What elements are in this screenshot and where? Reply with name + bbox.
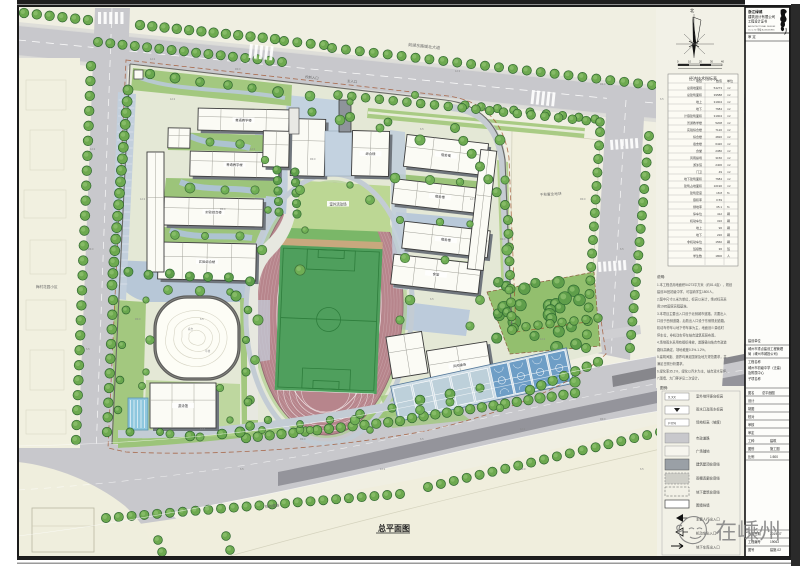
svg-text:10190: 10190 bbox=[714, 184, 723, 188]
svg-text:风雨操场: 风雨操场 bbox=[690, 155, 702, 160]
svg-text:6.5: 6.5 bbox=[330, 49, 334, 53]
svg-text:12.3: 12.3 bbox=[150, 57, 156, 61]
svg-text:31904: 31904 bbox=[714, 100, 723, 104]
svg-text:ARCHITECTURAL DESIGN: ARCHITECTURAL DESIGN bbox=[748, 25, 776, 28]
svg-text:围墙挡墙: 围墙挡墙 bbox=[696, 502, 710, 507]
svg-text:室外活动场: 室外活动场 bbox=[330, 201, 348, 206]
svg-text:R9.0: R9.0 bbox=[235, 67, 241, 71]
svg-text:计容建筑面积: 计容建筑面积 bbox=[684, 113, 702, 118]
svg-text:m²: m² bbox=[727, 135, 731, 139]
svg-text:综合楼: 综合楼 bbox=[693, 134, 702, 139]
svg-text:机动车停车以地下停车库为主，地面设少量临时: 机动车停车以地下停车库为主，地面设少量临时 bbox=[657, 325, 725, 330]
svg-text:地下: 地下 bbox=[696, 106, 702, 111]
svg-text:5208: 5208 bbox=[715, 121, 722, 125]
svg-text:实验综合楼: 实验综合楼 bbox=[199, 259, 216, 264]
svg-text:比例: 比例 bbox=[748, 454, 754, 459]
svg-text:建筑设计有限公司: 建筑设计有限公司 bbox=[748, 14, 775, 19]
svg-text:m²: m² bbox=[727, 93, 731, 97]
svg-text:2380: 2380 bbox=[715, 149, 722, 153]
svg-text:35.1: 35.1 bbox=[716, 205, 722, 209]
svg-text:总平面图: 总平面图 bbox=[378, 523, 410, 533]
svg-text:室外地坪竖向标高: 室外地坪竖向标高 bbox=[696, 393, 724, 398]
svg-text:m²: m² bbox=[727, 149, 731, 153]
svg-text:m²: m² bbox=[727, 177, 731, 181]
svg-text:口设于西侧道路，后勤出入口设于东侧规划道路。: 口设于西侧道路，后勤出入口设于东侧规划道路。 bbox=[657, 318, 727, 323]
svg-text:综合楼: 综合楼 bbox=[365, 151, 376, 156]
svg-text:非机动车位: 非机动车位 bbox=[687, 239, 702, 244]
svg-text:6.5: 6.5 bbox=[420, 437, 424, 441]
svg-text:审 定: 审 定 bbox=[748, 34, 756, 39]
svg-text:施工图: 施工图 bbox=[770, 446, 780, 451]
svg-text:辆: 辆 bbox=[727, 211, 730, 216]
svg-text:制图: 制图 bbox=[748, 406, 754, 411]
svg-text:游泳馆: 游泳馆 bbox=[693, 162, 702, 167]
svg-text:3.本项目主要出入口设于北侧城市道路，次要出入: 3.本项目主要出入口设于北侧城市道路，次要出入 bbox=[657, 311, 727, 316]
svg-text:R9.0: R9.0 bbox=[600, 417, 606, 421]
svg-text:4820: 4820 bbox=[715, 135, 722, 139]
svg-text:图名: 图名 bbox=[748, 390, 754, 395]
svg-text:辆: 辆 bbox=[727, 225, 730, 230]
svg-text:辆: 辆 bbox=[727, 232, 730, 237]
svg-text:6.5: 6.5 bbox=[620, 247, 624, 251]
svg-text:220: 220 bbox=[717, 233, 722, 237]
svg-text:6.绿化率35.1%，绿化以乔木为主，结合灌木草坪。: 6.绿化率35.1%，绿化以乔木为主，结合灌木草坪。 bbox=[657, 368, 729, 373]
svg-text:1560: 1560 bbox=[715, 240, 722, 244]
svg-text:12.3: 12.3 bbox=[140, 197, 146, 201]
svg-text:R9.0: R9.0 bbox=[220, 207, 226, 211]
svg-text:总平面图: 总平面图 bbox=[762, 390, 775, 395]
svg-text:工种: 工种 bbox=[748, 438, 754, 443]
svg-text:2406: 2406 bbox=[715, 163, 722, 167]
svg-text:审核: 审核 bbox=[748, 422, 755, 427]
svg-text:校对: 校对 bbox=[748, 414, 755, 419]
svg-text:3150: 3150 bbox=[715, 156, 722, 160]
svg-text:2.图中尺寸以米为单位，标高以米计，绝对标高采: 2.图中尺寸以米为单位，标高以米计，绝对标高采 bbox=[657, 296, 727, 301]
svg-text:食堂: 食堂 bbox=[696, 148, 702, 153]
svg-text:地下: 地下 bbox=[696, 232, 702, 237]
svg-text:6.5: 6.5 bbox=[240, 467, 244, 471]
svg-text:建设36班初级中学，可容纳学生1800人。: 建设36班初级中学，可容纳学生1800人。 bbox=[657, 289, 715, 294]
svg-text:R9.0: R9.0 bbox=[500, 237, 506, 241]
svg-text:6.5: 6.5 bbox=[660, 97, 664, 101]
svg-text:辆: 辆 bbox=[727, 239, 730, 244]
svg-text:m²: m² bbox=[727, 170, 731, 174]
svg-text:X.XX: X.XX bbox=[668, 396, 676, 400]
svg-text:游泳馆: 游泳馆 bbox=[178, 403, 189, 408]
svg-text:m²: m² bbox=[727, 86, 731, 90]
svg-text:市政道路: 市政道路 bbox=[696, 435, 710, 440]
svg-text:地上: 地上 bbox=[696, 225, 702, 230]
svg-text:6.5: 6.5 bbox=[200, 317, 204, 321]
svg-text:数值: 数值 bbox=[716, 78, 722, 83]
svg-text:建筑屋顶轮廓线: 建筑屋顶轮廓线 bbox=[696, 461, 720, 466]
svg-text:m²: m² bbox=[727, 121, 731, 125]
svg-text:m²: m² bbox=[727, 142, 731, 146]
svg-text:7.围墙、大门等详见二次设计。: 7.围墙、大门等详见二次设计。 bbox=[657, 376, 701, 381]
svg-text:说明:: 说明: bbox=[657, 274, 665, 279]
svg-text:R9.0: R9.0 bbox=[300, 437, 306, 441]
svg-text:49: 49 bbox=[719, 170, 723, 174]
svg-text:6.5: 6.5 bbox=[640, 467, 644, 471]
svg-text:5.建筑间距、退界均满足国家及地方规范要求，并: 5.建筑间距、退界均满足国家及地方规范要求，并 bbox=[657, 354, 727, 359]
svg-text:设计: 设计 bbox=[748, 398, 755, 403]
svg-text:图例:: 图例: bbox=[660, 385, 668, 390]
svg-text:m²: m² bbox=[727, 100, 731, 104]
svg-text:1.本工程总用地面积54273平方米（约81.4亩），规划: 1.本工程总用地面积54273平方米（约81.4亩），规划 bbox=[657, 282, 732, 287]
svg-text:m²: m² bbox=[727, 114, 731, 118]
svg-text:36: 36 bbox=[719, 247, 723, 251]
svg-text:项目: 项目 bbox=[696, 79, 702, 83]
svg-text:工程设计证书: 工程设计证书 bbox=[748, 19, 768, 24]
svg-text:12.3: 12.3 bbox=[250, 147, 256, 151]
svg-text:嵊州市初级中学（迁建）: 嵊州市初级中学（迁建） bbox=[748, 365, 783, 370]
svg-text:图号: 图号 bbox=[748, 547, 754, 552]
svg-text:满足日照分析要求。: 满足日照分析要求。 bbox=[657, 361, 686, 366]
svg-text:子项名称: 子项名称 bbox=[748, 376, 762, 381]
svg-text:412: 412 bbox=[717, 212, 722, 216]
svg-text:%: % bbox=[727, 205, 730, 209]
svg-text:R9.0: R9.0 bbox=[88, 247, 94, 251]
svg-text:路标高确定，场地坡度0.3%-1.2%。: 路标高确定，场地坡度0.3%-1.2%。 bbox=[657, 347, 708, 352]
svg-text:39588: 39588 bbox=[714, 93, 723, 97]
svg-text:%: % bbox=[727, 191, 730, 195]
svg-text:R9.0: R9.0 bbox=[600, 82, 606, 86]
svg-text:浙江绿城: 浙江绿城 bbox=[748, 9, 763, 14]
svg-text:12.3: 12.3 bbox=[170, 97, 176, 101]
svg-text:m²: m² bbox=[727, 128, 731, 132]
svg-text:班级数: 班级数 bbox=[693, 246, 702, 251]
svg-text:机动车位: 机动车位 bbox=[690, 218, 702, 223]
svg-text:R9.0: R9.0 bbox=[310, 157, 316, 161]
svg-text:地上: 地上 bbox=[696, 99, 702, 104]
svg-text:经济技术指标表: 经济技术指标表 bbox=[689, 75, 717, 81]
svg-text:总建筑面积: 总建筑面积 bbox=[687, 92, 702, 97]
svg-text:普通教学楼: 普通教学楼 bbox=[226, 162, 243, 167]
svg-text:雨棚连廊轮廓线: 雨棚连廊轮廓线 bbox=[696, 475, 720, 480]
svg-text:嵊州市重点建设工程管理: 嵊州市重点建设工程管理 bbox=[748, 346, 784, 351]
svg-text:在嵊州: 在嵊州 bbox=[715, 519, 781, 544]
svg-text:实验综合楼: 实验综合楼 bbox=[687, 127, 702, 132]
svg-text:6.5: 6.5 bbox=[420, 127, 424, 131]
svg-text:96: 96 bbox=[719, 226, 723, 230]
svg-text:12.3: 12.3 bbox=[520, 427, 526, 431]
svg-text:图别: 图别 bbox=[748, 446, 754, 451]
svg-text:6420: 6420 bbox=[715, 142, 722, 146]
svg-text:班: 班 bbox=[727, 246, 730, 251]
svg-text:地下建筑面积: 地下建筑面积 bbox=[684, 176, 702, 181]
svg-text:普通教学楼: 普通教学楼 bbox=[687, 120, 702, 125]
svg-text:停车位，非机动车停车结合建筑底层布置。: 停车位，非机动车停车结合建筑底层布置。 bbox=[657, 332, 718, 337]
svg-text:m²: m² bbox=[727, 107, 731, 111]
svg-text:建施-02: 建施-02 bbox=[770, 547, 781, 552]
svg-text:用1985国家高程基准。: 用1985国家高程基准。 bbox=[657, 304, 690, 309]
svg-text:容积率: 容积率 bbox=[693, 197, 702, 202]
svg-text:人: 人 bbox=[727, 254, 730, 258]
svg-text:1800: 1800 bbox=[715, 254, 722, 258]
svg-text:审定: 审定 bbox=[748, 430, 755, 435]
svg-text:7120: 7120 bbox=[715, 128, 722, 132]
svg-text:m²: m² bbox=[727, 184, 731, 188]
svg-text:12.3: 12.3 bbox=[470, 197, 476, 201]
svg-text:12.3: 12.3 bbox=[200, 427, 206, 431]
svg-text:广场铺地: 广场铺地 bbox=[696, 448, 710, 453]
svg-text:绿地率: 绿地率 bbox=[693, 204, 702, 209]
svg-text:建筑: 建筑 bbox=[770, 438, 777, 443]
svg-text:局（嵊州市城投公司）: 局（嵊州市城投公司） bbox=[748, 351, 780, 356]
svg-text:R9.0: R9.0 bbox=[135, 317, 141, 321]
svg-text:4.场地雨水采用有组织排放，道路竖向结合市政道: 4.场地雨水采用有组织排放，道路竖向结合市政道 bbox=[657, 340, 727, 345]
svg-text:学生数: 学生数 bbox=[693, 253, 702, 258]
svg-text:辆: 辆 bbox=[727, 218, 730, 223]
svg-text:R9.0: R9.0 bbox=[580, 197, 586, 201]
svg-text:普通教学楼: 普通教学楼 bbox=[235, 117, 252, 122]
svg-text:54273: 54273 bbox=[714, 86, 723, 90]
svg-text:1:500: 1:500 bbox=[770, 455, 778, 459]
svg-text:地下建筑轮廓线: 地下建筑轮廓线 bbox=[696, 489, 720, 494]
svg-text:7684: 7684 bbox=[715, 107, 722, 111]
svg-text:12.3: 12.3 bbox=[455, 69, 461, 73]
svg-text:12.3: 12.3 bbox=[380, 467, 386, 471]
svg-text:梅村花园小区: 梅村花园小区 bbox=[36, 284, 58, 289]
svg-text:建筑密度: 建筑密度 bbox=[690, 190, 702, 195]
svg-text:m²: m² bbox=[727, 156, 731, 160]
svg-text:宿舍楼: 宿舍楼 bbox=[693, 141, 702, 146]
svg-text:0.59: 0.59 bbox=[716, 198, 722, 202]
svg-text:及附属中心: 及附属中心 bbox=[748, 370, 765, 375]
svg-text:停车位: 停车位 bbox=[693, 211, 702, 216]
svg-text:建筑占地面积: 建筑占地面积 bbox=[684, 183, 702, 188]
svg-text:地下车库出入口: 地下车库出入口 bbox=[696, 544, 720, 549]
svg-text:6.5: 6.5 bbox=[430, 297, 434, 301]
svg-text:门卫: 门卫 bbox=[696, 169, 702, 174]
svg-text:雨水口及雨水标高: 雨水口及雨水标高 bbox=[696, 406, 724, 411]
svg-text:12.3: 12.3 bbox=[540, 337, 546, 341]
svg-text:场地标高（坡度）: 场地标高（坡度） bbox=[696, 419, 723, 424]
svg-text:31904: 31904 bbox=[714, 114, 723, 118]
svg-text:建设单位: 建设单位 bbox=[748, 338, 762, 343]
svg-text:单位: 单位 bbox=[727, 78, 733, 83]
svg-text:316: 316 bbox=[717, 219, 722, 223]
svg-text:工程名称: 工程名称 bbox=[748, 359, 762, 364]
svg-text:6.5: 6.5 bbox=[86, 347, 90, 351]
svg-text:18.8: 18.8 bbox=[716, 191, 722, 195]
svg-text:R9.0: R9.0 bbox=[520, 467, 526, 471]
svg-text:12.3: 12.3 bbox=[90, 147, 96, 151]
svg-text:7684: 7684 bbox=[715, 177, 722, 181]
svg-text:总用地面积: 总用地面积 bbox=[687, 85, 702, 90]
svg-text:看台: 看台 bbox=[188, 327, 194, 331]
svg-text:m²: m² bbox=[727, 163, 731, 167]
svg-text:i=X%: i=X% bbox=[668, 422, 676, 426]
